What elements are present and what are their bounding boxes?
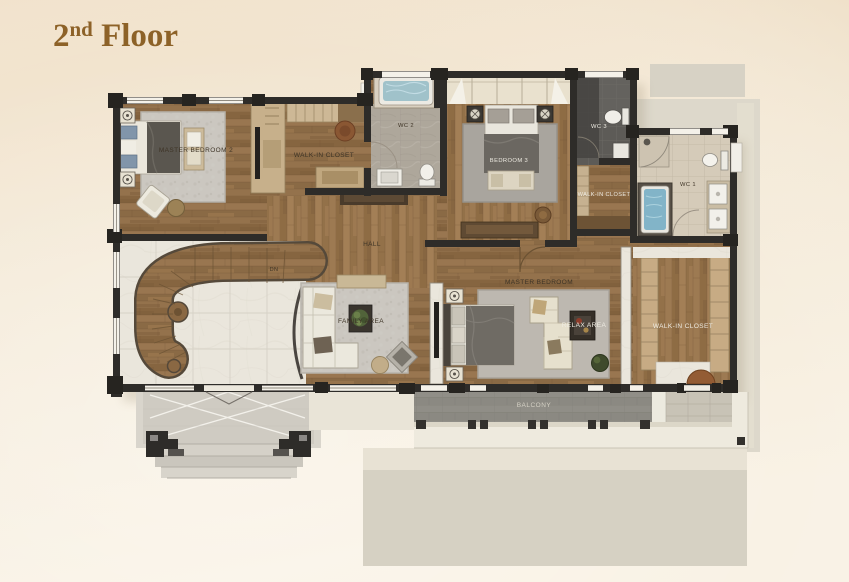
svg-text:RELAX AREA: RELAX AREA <box>562 322 607 329</box>
svg-text:BALCONY: BALCONY <box>517 402 552 409</box>
svg-text:MASTER BEDROOM: MASTER BEDROOM <box>505 279 573 286</box>
svg-text:WALK-IN CLOSET: WALK-IN CLOSET <box>294 152 354 159</box>
svg-text:WALK-IN CLOSET: WALK-IN CLOSET <box>578 192 631 198</box>
svg-text:DN: DN <box>270 267 279 273</box>
svg-text:WC 1: WC 1 <box>680 182 696 188</box>
svg-text:FAMILY AREA: FAMILY AREA <box>338 318 384 325</box>
svg-text:HALL: HALL <box>363 241 381 248</box>
svg-text:WC 2: WC 2 <box>398 123 414 129</box>
svg-text:MASTER BEDROOM 2: MASTER BEDROOM 2 <box>159 147 233 154</box>
svg-text:WC 3: WC 3 <box>591 124 607 130</box>
svg-text:BEDROOM 3: BEDROOM 3 <box>490 158 528 164</box>
svg-text:WALK-IN CLOSET: WALK-IN CLOSET <box>653 323 713 330</box>
